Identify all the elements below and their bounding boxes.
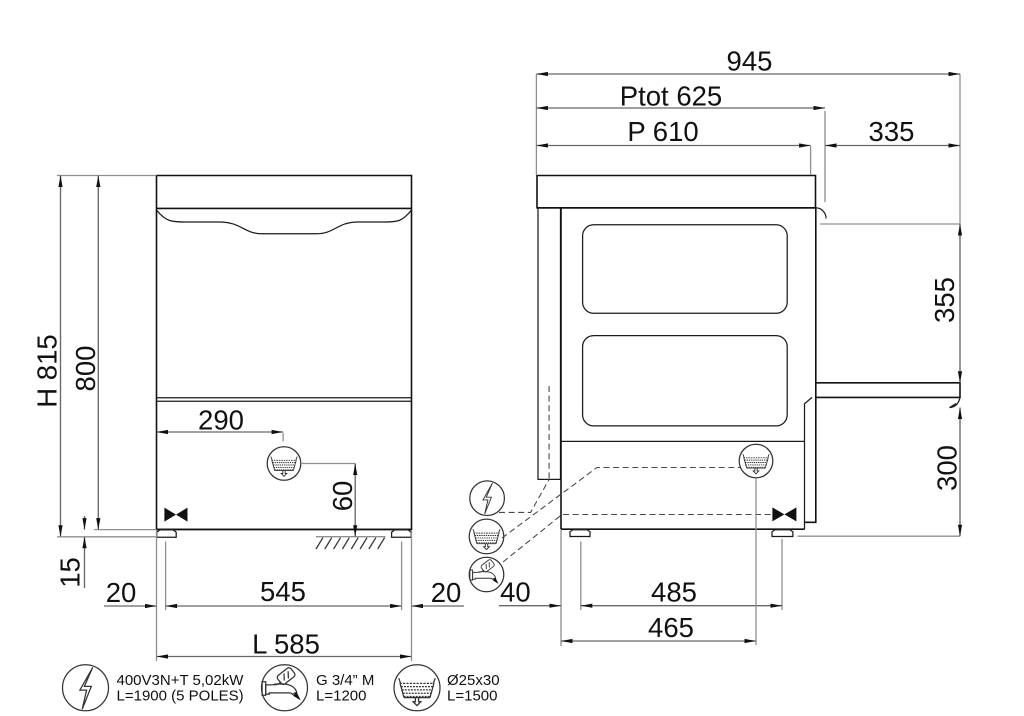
svg-text:15: 15 (54, 557, 85, 588)
svg-text:G 3/4” M: G 3/4” M (316, 672, 374, 689)
svg-text:800: 800 (70, 346, 101, 392)
svg-text:P 610: P 610 (627, 116, 698, 147)
svg-text:L=1200: L=1200 (316, 688, 366, 705)
svg-text:L 585: L 585 (252, 628, 320, 659)
svg-text:H 815: H 815 (31, 334, 62, 407)
svg-text:400V3N+T 5,02kW: 400V3N+T 5,02kW (117, 672, 245, 689)
svg-text:Ø25x30: Ø25x30 (447, 672, 500, 689)
svg-text:Ptot 625: Ptot 625 (620, 80, 722, 111)
svg-text:355: 355 (929, 277, 960, 323)
svg-text:L=1500: L=1500 (447, 688, 497, 705)
svg-text:300: 300 (931, 445, 962, 491)
svg-text:485: 485 (651, 576, 697, 607)
svg-text:465: 465 (648, 612, 694, 643)
svg-text:L=1900 (5 POLES): L=1900 (5 POLES) (117, 688, 244, 705)
svg-text:20: 20 (431, 577, 462, 608)
svg-text:945: 945 (727, 45, 773, 76)
svg-text:60: 60 (327, 481, 358, 512)
svg-text:545: 545 (260, 576, 306, 607)
svg-text:40: 40 (500, 576, 531, 607)
svg-text:290: 290 (198, 404, 244, 435)
svg-text:20: 20 (106, 577, 137, 608)
svg-text:335: 335 (869, 116, 915, 147)
